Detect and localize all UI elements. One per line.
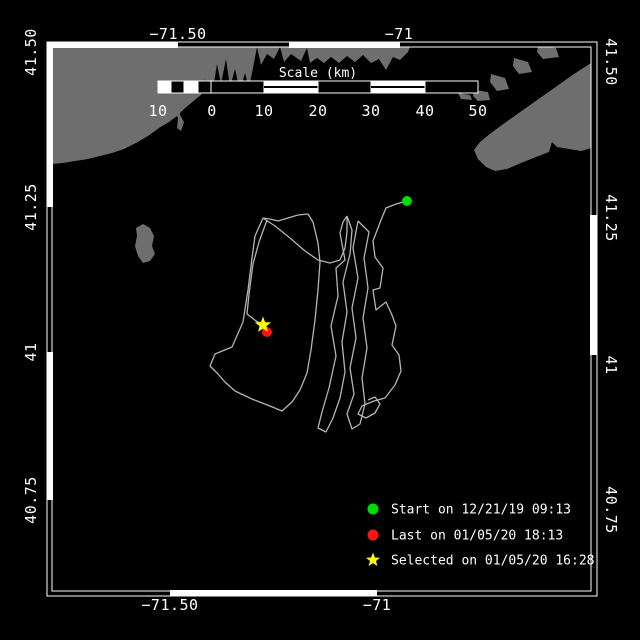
- tracking-map-window: Scale (km)1001020304050−71.50−71−71.50−7…: [0, 0, 640, 640]
- legend-label: Start on 12/21/19 09:13: [391, 503, 571, 518]
- scale-tick-label: 10: [254, 102, 273, 120]
- scale-tick-label: 0: [207, 102, 217, 120]
- legend-selected-marker-icon: [366, 553, 380, 567]
- scale-tick-label: 30: [361, 102, 380, 120]
- scale-bar-segment: [198, 81, 211, 93]
- landmass: [537, 46, 559, 59]
- axis-label-latitude-right: 40.75: [602, 486, 620, 534]
- landmass: [513, 58, 532, 74]
- scale-tick-label: 20: [308, 102, 327, 120]
- scale-tick-label: 40: [415, 102, 434, 120]
- scale-bar-segment: [425, 81, 478, 93]
- axis-label-latitude-right: 41.25: [602, 194, 620, 242]
- axis-label-longitude-top: −71.50: [149, 25, 206, 43]
- legend-label: Selected on 01/05/20 16:28: [391, 554, 595, 569]
- scale-bar-segment: [211, 81, 264, 93]
- track-path: [263, 216, 347, 263]
- axis-label-longitude-top: −71: [385, 25, 414, 43]
- track-map-canvas: Scale (km)1001020304050−71.50−71−71.50−7…: [0, 0, 640, 640]
- scale-tick-label: 50: [468, 102, 487, 120]
- scale-bar-segment: [158, 81, 171, 93]
- scale-bar-stripe: [371, 86, 425, 88]
- axis-label-latitude-left: 41.50: [22, 28, 40, 76]
- track-path: [318, 216, 352, 432]
- legend-last-marker-icon: [368, 530, 379, 541]
- scale-bar-stripe: [264, 86, 318, 88]
- landmass: [458, 93, 472, 100]
- track-path: [210, 214, 320, 411]
- landmass: [490, 74, 509, 91]
- axis-label-latitude-left: 40.75: [22, 476, 40, 524]
- axis-label-longitude-bottom: −71: [363, 596, 392, 614]
- scale-bar-segment: [184, 81, 198, 93]
- legend-start-marker-icon: [368, 504, 379, 515]
- scale-bar-segment: [171, 81, 184, 93]
- scale-bar-title: Scale (km): [279, 66, 357, 81]
- legend-label: Last on 01/05/20 18:13: [391, 529, 563, 544]
- landmass: [52, 47, 410, 164]
- scale-tick-label: 10: [148, 102, 167, 120]
- track-path: [358, 201, 407, 418]
- axis-label-latitude-right: 41.50: [602, 38, 620, 86]
- axis-label-latitude-left: 41: [22, 342, 40, 361]
- scale-bar-segment: [318, 81, 371, 93]
- start-marker[interactable]: [402, 196, 412, 206]
- axis-label-latitude-right: 41: [602, 355, 620, 374]
- axis-label-latitude-left: 41.25: [22, 183, 40, 231]
- axis-label-longitude-bottom: −71.50: [141, 596, 198, 614]
- landmass: [135, 224, 155, 263]
